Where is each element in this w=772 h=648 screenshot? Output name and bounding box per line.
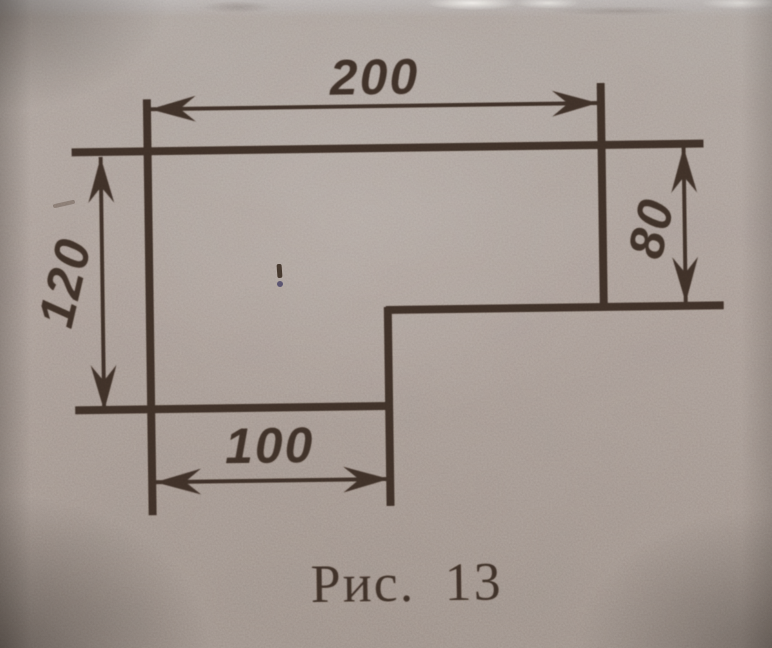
scanned-page: 200 120 80 100 Рис. 13: [0, 0, 772, 648]
grain-overlay: [0, 0, 772, 648]
technical-drawing: 200 120 80 100 Рис. 13: [0, 0, 772, 648]
